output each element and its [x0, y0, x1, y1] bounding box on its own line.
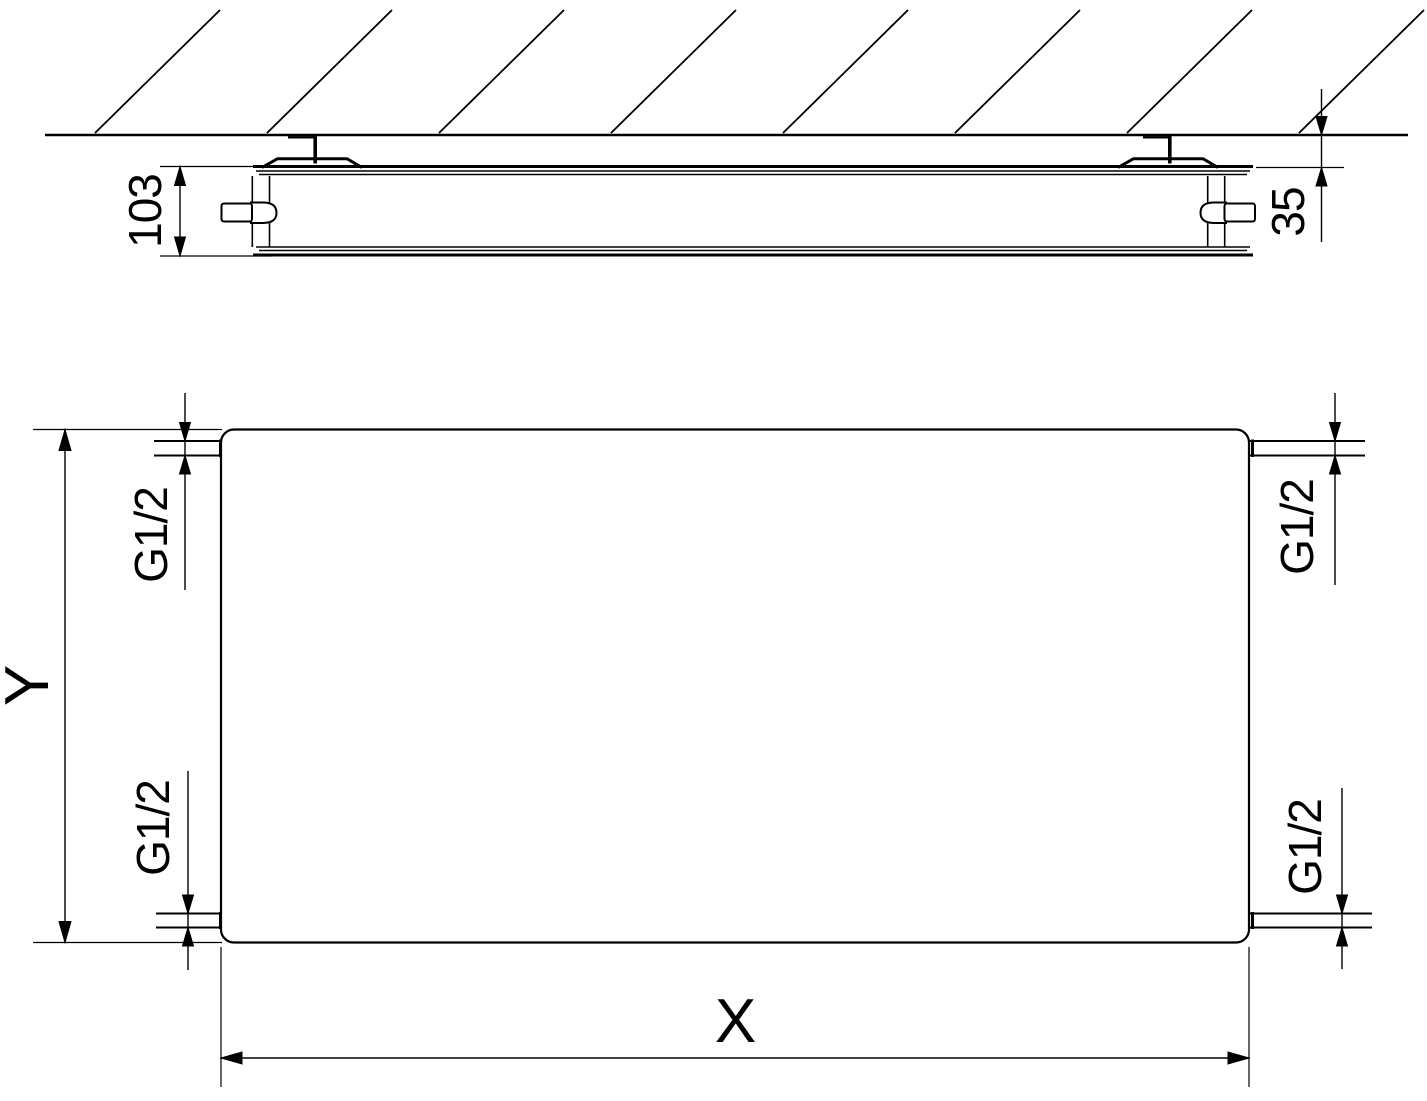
- drawing-canvas: 103 35 G1/2 G1/2 G1/2 G1/2 Y X: [0, 0, 1427, 1101]
- connection-nipple-bottom-right: [1248, 912, 1372, 929]
- height-dimension-label: Y: [0, 666, 59, 706]
- radiator-technical-drawing: [0, 0, 1427, 1101]
- thread-dimension-top-left: [180, 393, 191, 590]
- thread-dimension-bottom-right: [1337, 788, 1348, 969]
- thread-label-bottom-left: G1/2: [130, 780, 176, 876]
- thread-dimension-top-right: [1330, 393, 1341, 585]
- side-connection-boss-right: [1201, 203, 1227, 224]
- connection-nipple-bottom-left: [156, 912, 222, 929]
- side-connection-nipple-left: [222, 204, 253, 222]
- connection-nipple-top-left: [154, 440, 222, 458]
- connection-nipple-top-right: [1248, 440, 1365, 458]
- wall-distance-dimension-label: 35: [1265, 187, 1311, 236]
- wall-bracket-left: [262, 136, 362, 168]
- thread-label-bottom-right: G1/2: [1282, 799, 1328, 895]
- thread-label-top-right: G1/2: [1274, 479, 1320, 575]
- side-connection-boss-left: [251, 203, 277, 224]
- thread-dimension-bottom-left: [183, 771, 194, 970]
- wall-bracket-right: [1118, 136, 1218, 168]
- side-view-radiator-panel: [222, 167, 1256, 256]
- width-dimension-label: X: [715, 991, 755, 1053]
- thread-label-top-left: G1/2: [128, 487, 174, 583]
- wall-hatching: [95, 10, 1424, 133]
- side-connection-nipple-right: [1225, 204, 1256, 222]
- front-view-panel: [221, 430, 1249, 943]
- depth-dimension-label: 103: [122, 174, 168, 248]
